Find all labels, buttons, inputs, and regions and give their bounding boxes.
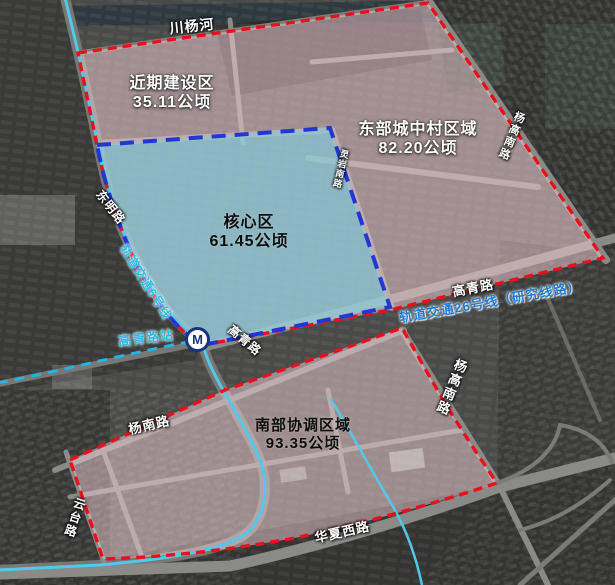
planning-map: 川杨河 近期建设区 35.11公顷 东部城中村区域 82.20公顷 核心区 61… bbox=[0, 0, 615, 585]
metro-logo-icon: M bbox=[185, 327, 210, 352]
satellite-map-canvas bbox=[0, 0, 615, 585]
